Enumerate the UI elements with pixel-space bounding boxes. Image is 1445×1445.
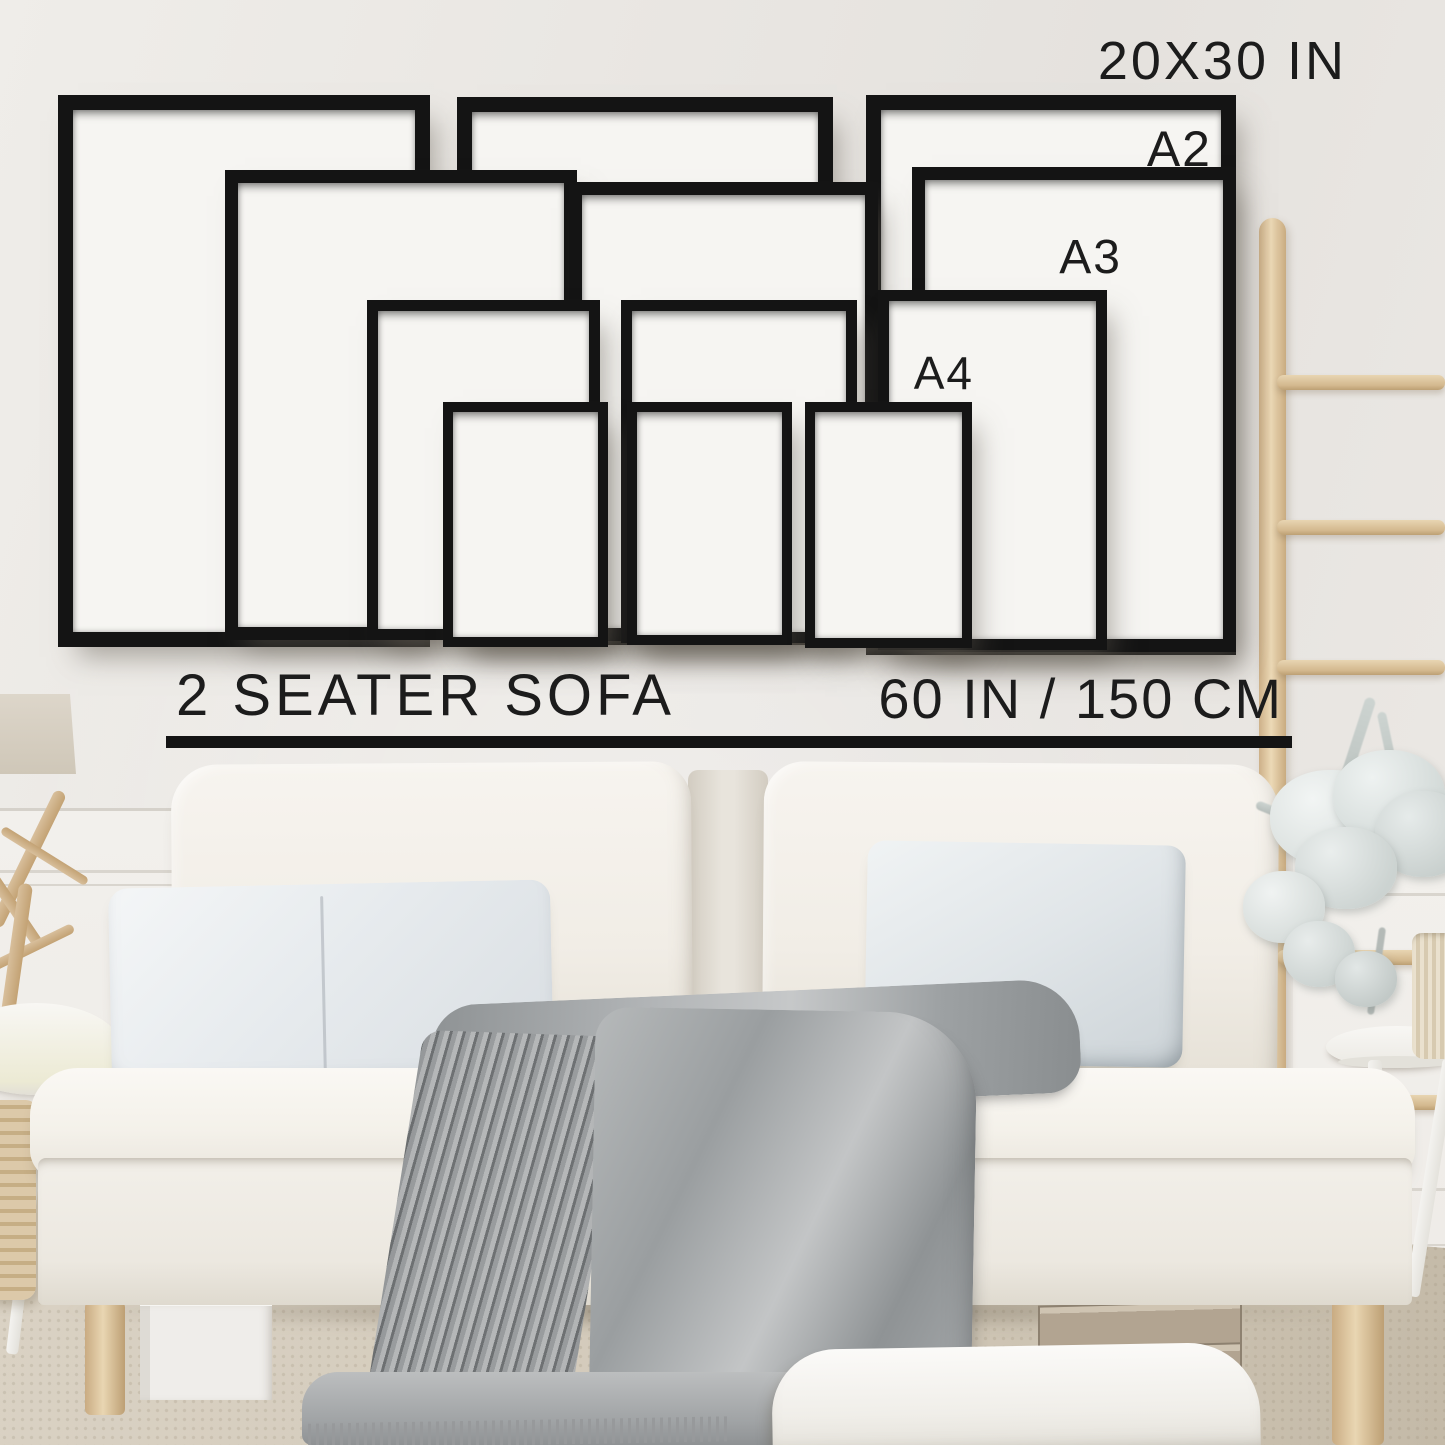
sofa-width-label: 60 IN / 150 CM [878,666,1283,731]
floor-pillow [771,1342,1261,1445]
frame-a4-right [805,402,972,648]
pillow-seam [320,896,327,1074]
driftwood-sculpture [0,778,98,1018]
ladder-rung [1277,520,1445,535]
frame-a4-middle [627,402,792,645]
ladder-rung [1277,375,1445,390]
frame-mat [815,412,962,638]
size-label-a3: A3 [1059,230,1122,285]
lampshade [0,694,76,774]
size-label-a2: A2 [1147,120,1212,178]
size-label-a4: A4 [914,346,974,400]
sofa-label: 2 SEATER SOFA [176,662,675,729]
size-label-20x30: 20X30 IN [1098,30,1347,92]
sofa-leg-left [85,1303,125,1415]
storage-box-under-sofa [140,1303,272,1400]
frame-a4-left [443,402,608,647]
frame-mat [637,412,782,635]
frame-mat [453,412,598,637]
flower-bloom [1335,951,1397,1007]
sofa-leg-right [1332,1300,1384,1445]
sofa-width-measure-line [166,736,1292,748]
ladder-rung [1277,660,1445,675]
size-guide-mockup-image: 20X30 IN A2 A3 A4 2 SEATER SOFA 60 IN / … [0,0,1445,1445]
